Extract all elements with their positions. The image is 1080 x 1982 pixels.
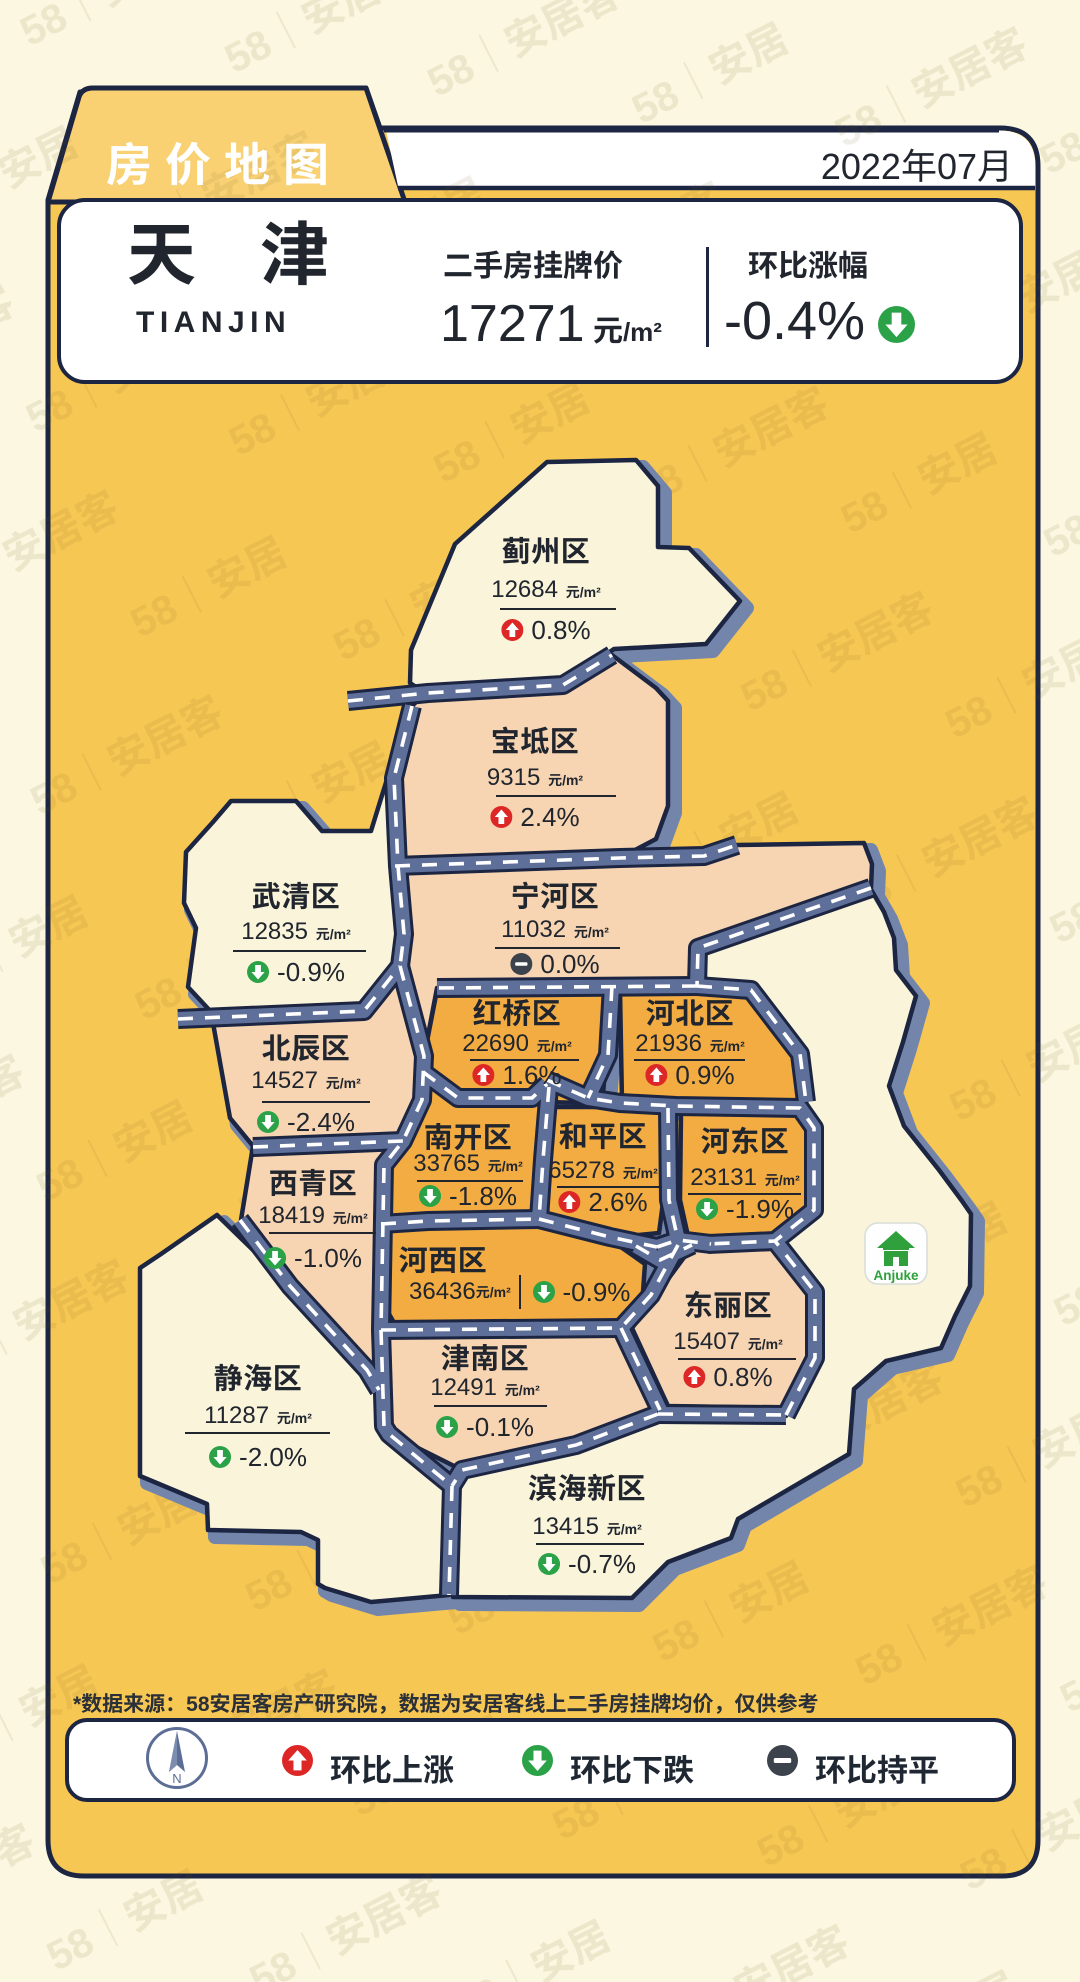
svg-text:N: N bbox=[172, 1771, 181, 1786]
svg-text:Anjuke: Anjuke bbox=[873, 1268, 919, 1283]
